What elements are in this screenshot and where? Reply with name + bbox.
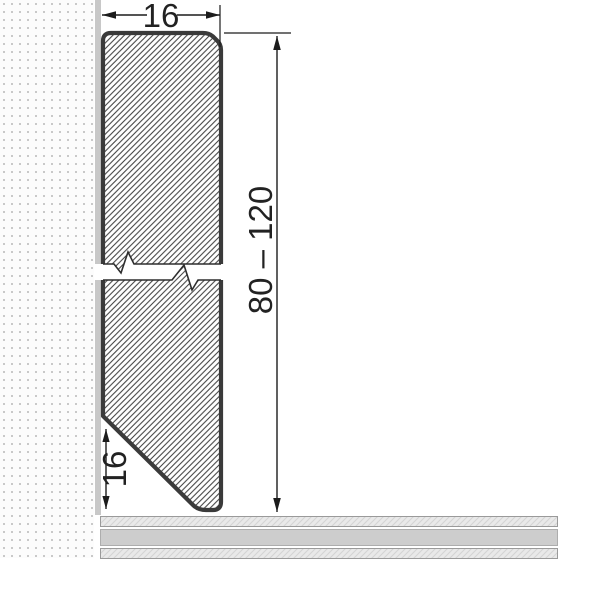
floor-bottom-layer (101, 549, 558, 559)
wall-plaster-texture (0, 0, 94, 558)
arrow-up-small-icon (102, 429, 109, 442)
arrow-left-icon (102, 11, 116, 19)
break-gap (94, 264, 103, 280)
dim-label-bottom-chamfer: 16 (96, 451, 133, 488)
arrow-up-icon (273, 36, 281, 50)
technical-drawing-canvas: 16 80 – 120 16 (0, 0, 604, 604)
floor-top-layer (101, 517, 558, 527)
floor-middle-layer (101, 530, 558, 546)
dim-label-top-width: 16 (143, 0, 180, 34)
wall-surface-strip (95, 0, 101, 515)
arrow-down-small-icon (102, 496, 109, 509)
arrow-down-icon (273, 498, 281, 512)
skirting-profile-upper-section (103, 33, 221, 273)
dim-label-height-range: 80 – 120 (242, 186, 279, 314)
skirting-profile-diagram: 16 80 – 120 16 (0, 0, 604, 604)
floor-layers (101, 517, 558, 559)
arrow-right-icon (206, 11, 220, 19)
